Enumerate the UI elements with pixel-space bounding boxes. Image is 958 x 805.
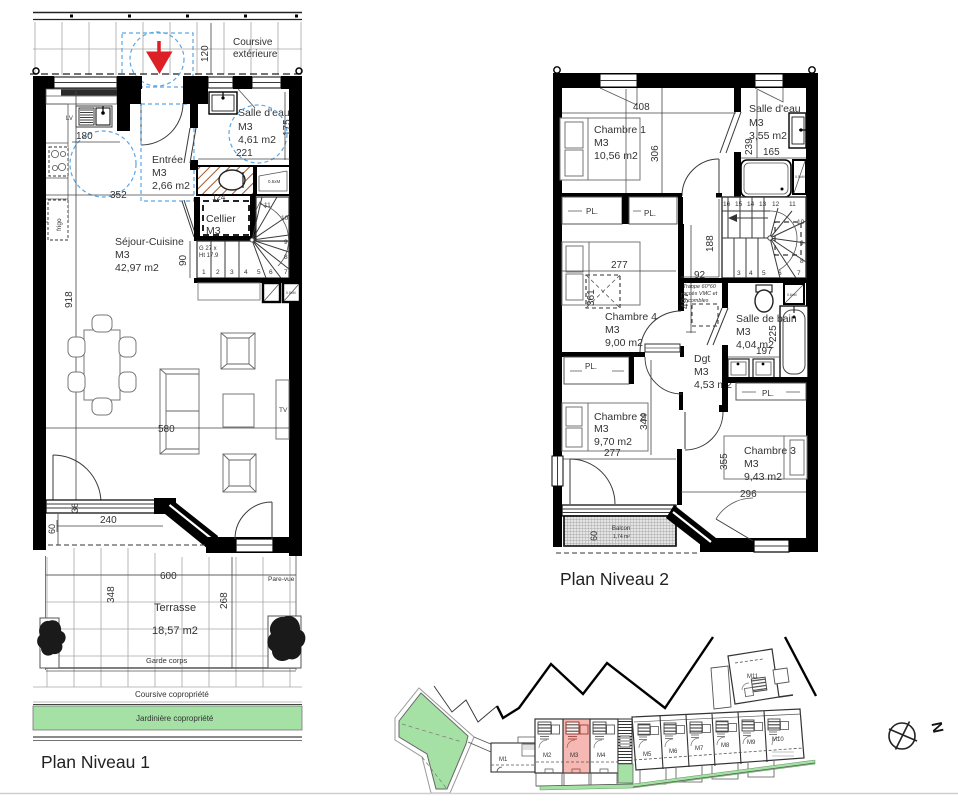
svg-text:355: 355 <box>719 453 730 470</box>
svg-text:M5: M5 <box>643 752 652 758</box>
svg-text:M3: M3 <box>238 121 253 133</box>
svg-text:M6: M6 <box>669 749 678 755</box>
svg-text:Balcon: Balcon <box>612 526 630 532</box>
svg-text:frigo: frigo <box>56 218 63 231</box>
svg-text:Pare-vue: Pare-vue <box>268 576 295 583</box>
svg-text:4: 4 <box>749 270 753 277</box>
svg-text:408: 408 <box>633 102 650 113</box>
svg-text:0.5xM: 0.5xM <box>286 291 296 295</box>
svg-text:344: 344 <box>639 413 650 430</box>
svg-text:M11: M11 <box>747 674 759 680</box>
svg-text:LV: LV <box>66 116 73 122</box>
svg-text:Chambre 3: Chambre 3 <box>744 445 796 457</box>
svg-text:165: 165 <box>763 147 780 158</box>
svg-text:M3: M3 <box>594 423 609 435</box>
svg-text:0.5xM: 0.5xM <box>795 175 805 179</box>
svg-text:Séjour-Cuisine: Séjour-Cuisine <box>115 236 184 248</box>
svg-text:580: 580 <box>158 424 175 435</box>
svg-text:11: 11 <box>789 201 796 208</box>
svg-text:120: 120 <box>200 45 211 62</box>
svg-text:600: 600 <box>160 571 177 582</box>
svg-text:G 27 x: G 27 x <box>199 246 217 252</box>
svg-text:7: 7 <box>284 269 288 276</box>
svg-text:M3: M3 <box>570 753 579 759</box>
svg-text:4: 4 <box>244 269 248 276</box>
svg-text:306: 306 <box>650 145 661 162</box>
svg-text:124: 124 <box>212 193 226 202</box>
svg-text:Terrasse: Terrasse <box>154 602 196 614</box>
svg-text:M3: M3 <box>206 225 221 237</box>
svg-text:42,97 m2: 42,97 m2 <box>115 262 159 274</box>
svg-text:Plan Niveau 2: Plan Niveau 2 <box>560 569 669 589</box>
svg-text:Salle de bain: Salle de bain <box>736 313 797 325</box>
svg-text:TV: TV <box>279 407 288 414</box>
svg-text:Dgt: Dgt <box>694 353 710 365</box>
svg-text:Chambre 1: Chambre 1 <box>594 124 646 136</box>
svg-text:0.5xM: 0.5xM <box>268 179 281 184</box>
svg-text:6: 6 <box>778 270 782 277</box>
svg-text:M9: M9 <box>747 740 756 746</box>
svg-text:918: 918 <box>64 291 75 308</box>
svg-text:36: 36 <box>70 503 80 513</box>
svg-text:M3: M3 <box>115 249 130 261</box>
svg-text:188: 188 <box>705 235 716 252</box>
svg-text:6: 6 <box>269 269 273 276</box>
svg-text:Plan Niveau 1: Plan Niveau 1 <box>41 752 150 772</box>
svg-text:18,57 m2: 18,57 m2 <box>152 625 198 637</box>
svg-text:2: 2 <box>216 269 220 276</box>
svg-text:1: 1 <box>202 269 206 276</box>
svg-text:13: 13 <box>759 201 767 208</box>
svg-text:277: 277 <box>604 448 621 459</box>
svg-text:8: 8 <box>284 254 288 261</box>
svg-text:361: 361 <box>586 289 597 306</box>
svg-text:Coursive copropriété: Coursive copropriété <box>135 690 209 699</box>
svg-text:180: 180 <box>76 131 93 142</box>
svg-text:5: 5 <box>257 269 261 276</box>
svg-text:Cellier: Cellier <box>206 213 236 225</box>
svg-text:extérieure: extérieure <box>233 49 278 60</box>
svg-text:221: 221 <box>236 148 253 159</box>
svg-text:M2: M2 <box>543 753 552 759</box>
svg-text:240: 240 <box>100 515 117 526</box>
svg-text:1,74 m²: 1,74 m² <box>613 534 630 540</box>
svg-text:PL.: PL. <box>762 389 774 398</box>
svg-text:Jardinière copropriété: Jardinière copropriété <box>136 714 214 723</box>
svg-text:M7: M7 <box>695 746 704 752</box>
svg-text:10,56 m2: 10,56 m2 <box>594 150 638 162</box>
svg-text:M3: M3 <box>749 117 764 129</box>
svg-text:9,43 m2: 9,43 m2 <box>744 471 782 483</box>
svg-text:3: 3 <box>737 270 741 277</box>
svg-text:9: 9 <box>284 239 288 246</box>
svg-text:M3: M3 <box>152 167 167 179</box>
svg-text:15: 15 <box>735 201 743 208</box>
svg-text:60: 60 <box>589 531 599 541</box>
svg-text:7: 7 <box>797 270 801 277</box>
svg-text:352: 352 <box>110 190 127 201</box>
svg-text:M3: M3 <box>605 324 620 336</box>
svg-text:175: 175 <box>282 119 293 136</box>
svg-text:239: 239 <box>744 138 755 155</box>
svg-text:PL.: PL. <box>586 207 598 216</box>
svg-text:PL.: PL. <box>644 209 656 218</box>
svg-text:M3: M3 <box>744 458 759 470</box>
svg-text:10: 10 <box>281 215 289 222</box>
svg-text:9,70 m2: 9,70 m2 <box>594 436 632 448</box>
svg-text:5: 5 <box>762 270 766 277</box>
svg-text:197: 197 <box>756 346 773 357</box>
svg-text:268: 268 <box>219 592 230 609</box>
svg-text:2,66 m2: 2,66 m2 <box>152 180 190 192</box>
svg-text:497: 497 <box>680 292 691 309</box>
svg-text:Garde corps: Garde corps <box>146 656 188 665</box>
svg-text:90: 90 <box>178 254 189 266</box>
svg-text:8: 8 <box>800 258 804 265</box>
svg-text:16: 16 <box>723 201 731 208</box>
svg-text:60: 60 <box>47 524 57 534</box>
svg-text:225: 225 <box>768 325 779 342</box>
svg-text:PL.: PL. <box>585 362 597 371</box>
svg-text:Chambre 4: Chambre 4 <box>605 311 657 323</box>
svg-text:M4: M4 <box>597 753 606 759</box>
svg-text:Trappe 60*60: Trappe 60*60 <box>683 284 717 290</box>
svg-text:M3: M3 <box>694 366 709 378</box>
svg-text:12: 12 <box>772 201 780 208</box>
svg-text:M10: M10 <box>772 737 784 743</box>
svg-text:348: 348 <box>106 586 117 603</box>
svg-text:M3: M3 <box>736 326 751 338</box>
svg-text:Entrée: Entrée <box>152 154 183 166</box>
svg-text:4,61 m2: 4,61 m2 <box>238 134 276 146</box>
svg-text:0.6xM: 0.6xM <box>787 293 797 297</box>
svg-text:11: 11 <box>264 202 271 209</box>
svg-text:M8: M8 <box>721 743 730 749</box>
svg-text:277: 277 <box>611 260 628 271</box>
svg-text:14: 14 <box>747 201 755 208</box>
svg-text:9,00 m2: 9,00 m2 <box>605 337 643 349</box>
svg-text:Coursive: Coursive <box>233 37 273 48</box>
svg-text:M1: M1 <box>499 757 508 763</box>
svg-text:M3: M3 <box>594 137 609 149</box>
svg-text:Ht 17.9: Ht 17.9 <box>199 253 219 259</box>
svg-text:3: 3 <box>230 269 234 276</box>
